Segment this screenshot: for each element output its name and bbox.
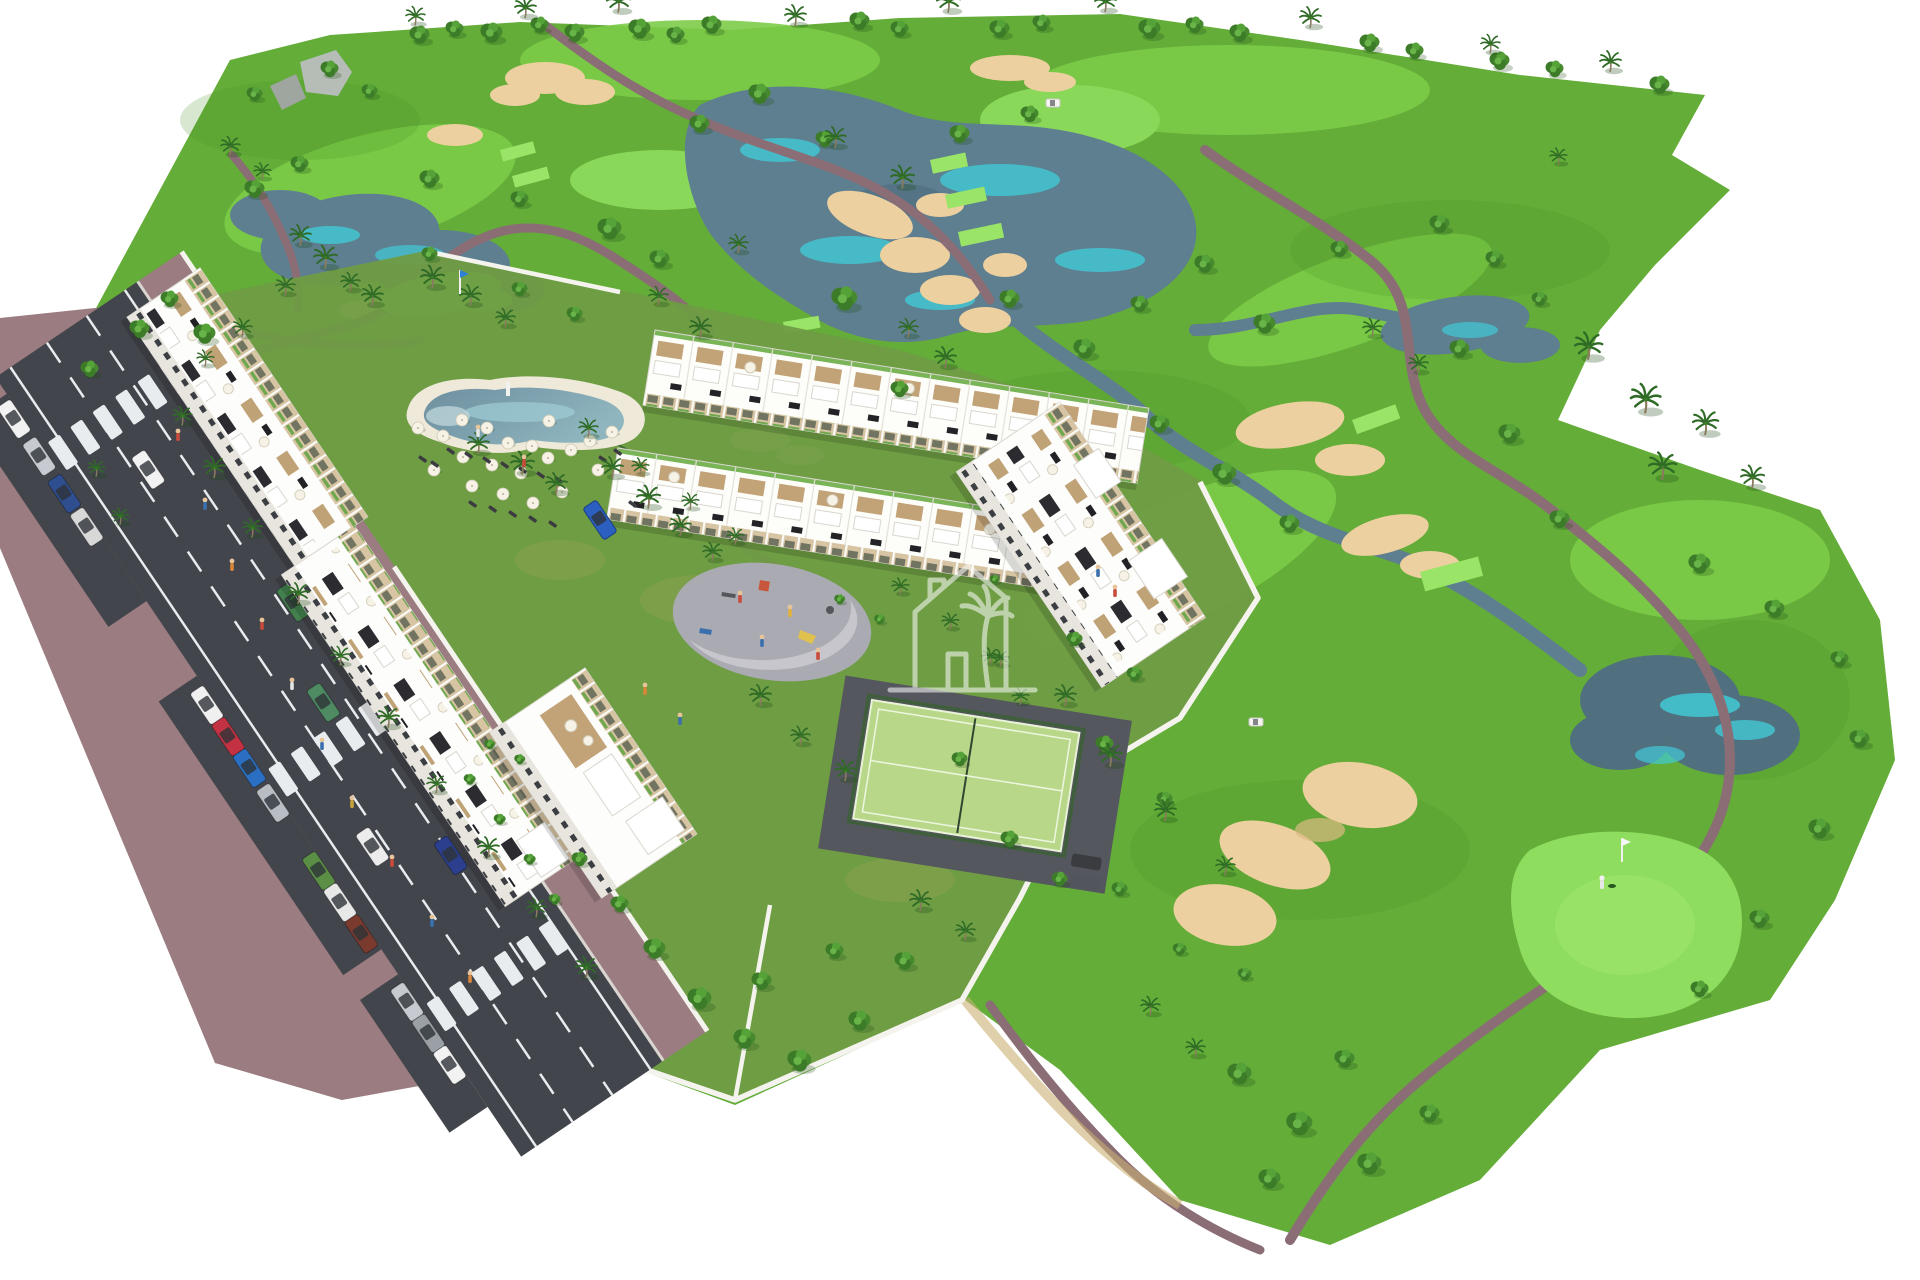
- bunker: [490, 84, 540, 106]
- bunker: [959, 307, 1011, 333]
- bunker: [555, 79, 615, 105]
- pedestrian-head: [678, 713, 683, 718]
- bunker: [983, 253, 1027, 277]
- bunker: [920, 275, 980, 305]
- pedestrian-body: [230, 563, 234, 571]
- pedestrian-head: [230, 559, 235, 564]
- pedestrian: [788, 605, 793, 617]
- play-structure: [758, 580, 769, 591]
- pedestrian: [738, 591, 743, 603]
- scene-canvas: [0, 0, 1920, 1280]
- pedestrian-body: [390, 859, 394, 867]
- pedestrian: [760, 635, 765, 647]
- pedestrian: [290, 678, 295, 690]
- pedestrian-head: [816, 648, 821, 653]
- pedestrian-body: [1113, 589, 1117, 597]
- pedestrian-body: [203, 502, 207, 510]
- pool-shallow: [465, 402, 575, 422]
- pedestrian-head: [320, 738, 325, 743]
- pedestrian-body: [760, 639, 764, 647]
- pedestrian-head: [203, 498, 208, 503]
- pedestrian-head: [260, 618, 265, 623]
- pedestrian-head: [430, 915, 435, 920]
- bunker: [880, 237, 950, 273]
- pedestrian: [468, 971, 473, 983]
- pedestrian-body: [176, 433, 180, 441]
- pedestrian-head: [390, 855, 395, 860]
- pedestrian: [203, 498, 208, 510]
- pedestrian-body: [290, 682, 294, 690]
- pedestrian-body: [643, 687, 647, 695]
- bunker: [1024, 72, 1076, 92]
- pedestrian-head: [738, 591, 743, 596]
- pedestrian-head: [176, 429, 181, 434]
- bunker-shade: [1295, 818, 1345, 842]
- pedestrian: [430, 915, 435, 927]
- pedestrian: [350, 796, 355, 808]
- pedestrian: [320, 738, 325, 750]
- pedestrian-body: [320, 742, 324, 750]
- aerial-render: [0, 0, 1920, 1280]
- pedestrian-body: [430, 919, 434, 927]
- shallow-water: [1055, 248, 1145, 272]
- pedestrian: [230, 559, 235, 571]
- pedestrian: [1113, 585, 1118, 597]
- dry-grass: [515, 540, 605, 580]
- pedestrian: [476, 425, 481, 437]
- pedestrian: [522, 455, 527, 467]
- pedestrian-body: [468, 975, 472, 983]
- bunker: [427, 124, 483, 146]
- pedestrian-body: [350, 800, 354, 808]
- pedestrian-body: [1096, 569, 1100, 577]
- pedestrian: [1096, 565, 1101, 577]
- pedestrian-body: [816, 652, 820, 660]
- pedestrian-body: [522, 459, 526, 467]
- golfer-body: [1600, 880, 1604, 889]
- pedestrian-body: [260, 622, 264, 630]
- green-highlight: [1555, 875, 1695, 975]
- shallow-water: [1442, 322, 1498, 338]
- pedestrian-head: [1096, 565, 1101, 570]
- pedestrian-head: [290, 678, 295, 683]
- pedestrian: [390, 855, 395, 867]
- pedestrian: [643, 683, 648, 695]
- shallow-water: [1635, 746, 1685, 764]
- pedestrian-head: [522, 455, 527, 460]
- roundabout: [826, 606, 834, 614]
- shallow-water: [940, 164, 1060, 196]
- pedestrian-head: [476, 425, 481, 430]
- pedestrian: [816, 648, 821, 660]
- golf-hole: [1608, 884, 1616, 888]
- pedestrian: [678, 713, 683, 725]
- pedestrian-head: [760, 635, 765, 640]
- pedestrian-body: [738, 595, 742, 603]
- golfer: [1599, 875, 1604, 889]
- pedestrian-head: [468, 971, 473, 976]
- pedestrian-body: [678, 717, 682, 725]
- golf-cart: [1249, 718, 1263, 726]
- bunker: [1315, 444, 1385, 476]
- pedestrian: [260, 618, 265, 630]
- pedestrian: [176, 429, 181, 441]
- cart-seat: [1253, 719, 1258, 725]
- pedestrian-head: [350, 796, 355, 801]
- shallow-water: [300, 226, 360, 244]
- pedestrian-head: [643, 683, 648, 688]
- pedestrian-body: [788, 609, 792, 617]
- pool-feature-wall: [506, 382, 510, 396]
- pedestrian-body: [476, 429, 480, 437]
- cart-seat: [1050, 100, 1055, 106]
- pedestrian-head: [788, 605, 793, 610]
- golf-cart: [1046, 99, 1060, 107]
- pedestrian-head: [1113, 585, 1118, 590]
- golfer-head: [1599, 875, 1604, 880]
